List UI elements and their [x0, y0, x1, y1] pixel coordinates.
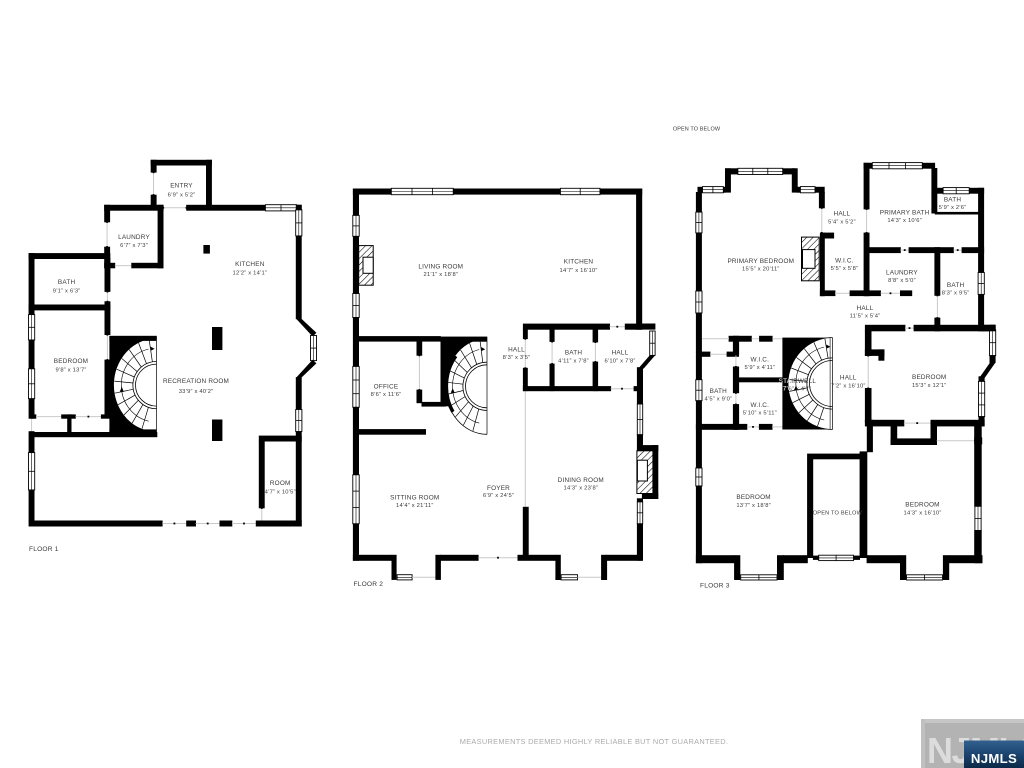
svg-text:BATH: BATH	[947, 282, 965, 289]
svg-text:PRIMARY BATH: PRIMARY BATH	[880, 209, 930, 216]
svg-text:15’3” x 12’1”: 15’3” x 12’1”	[912, 383, 947, 389]
svg-text:BEDROOM: BEDROOM	[736, 494, 770, 501]
svg-text:FLOOR 3: FLOOR 3	[700, 583, 730, 590]
svg-text:DINING ROOM: DINING ROOM	[558, 477, 604, 484]
svg-text:OFFICE: OFFICE	[374, 384, 399, 391]
svg-text:8’3” x 9’5”: 8’3” x 9’5”	[942, 291, 970, 297]
svg-text:LAUNDRY: LAUNDRY	[886, 270, 918, 277]
svg-text:W.I.C.: W.I.C.	[750, 356, 769, 363]
svg-text:W.I.C.: W.I.C.	[750, 402, 769, 409]
svg-text:14’4” x 21’11”: 14’4” x 21’11”	[396, 503, 434, 509]
svg-text:14’3” x 10’6”: 14’3” x 10’6”	[887, 218, 922, 224]
svg-text:HALL: HALL	[840, 375, 857, 382]
svg-text:FLOOR 2: FLOOR 2	[354, 581, 384, 588]
svg-text:BEDROOM: BEDROOM	[54, 358, 88, 365]
svg-text:OPEN TO BELOW: OPEN TO BELOW	[673, 127, 721, 133]
svg-text:OPEN TO BELOW: OPEN TO BELOW	[813, 511, 863, 517]
svg-text:7’2” x 16’10”: 7’2” x 16’10”	[831, 383, 866, 389]
svg-text:5’9” x 2’6”: 5’9” x 2’6”	[939, 205, 967, 211]
svg-text:11’5” x 5’4”: 11’5” x 5’4”	[850, 314, 881, 320]
svg-text:12’2” x 14’1”: 12’2” x 14’1”	[233, 271, 268, 277]
svg-text:6’10” x 7’8”: 6’10” x 7’8”	[604, 358, 635, 364]
svg-text:FLOOR 1: FLOOR 1	[29, 546, 59, 553]
svg-text:MEASUREMENTS DEEMED HIGHLY REL: MEASUREMENTS DEEMED HIGHLY RELIABLE BUT …	[460, 737, 729, 746]
svg-text:4’7” x 10’5”: 4’7” x 10’5”	[265, 489, 296, 495]
svg-text:FOYER: FOYER	[487, 485, 510, 492]
svg-text:BATH: BATH	[944, 196, 962, 203]
svg-text:ROOM: ROOM	[270, 480, 291, 487]
svg-text:LAUNDRY: LAUNDRY	[118, 234, 150, 241]
svg-text:KITCHEN: KITCHEN	[235, 261, 265, 268]
svg-text:ENTRY: ENTRY	[170, 183, 193, 190]
svg-text:W.I.C.: W.I.C.	[835, 258, 854, 265]
svg-text:5’4” x 5’2”: 5’4” x 5’2”	[828, 220, 856, 226]
svg-text:BATH: BATH	[58, 279, 76, 286]
svg-text:BATH: BATH	[565, 350, 583, 357]
svg-text:HALL: HALL	[857, 305, 874, 312]
svg-text:8’8” x 5’0”: 8’8” x 5’0”	[888, 278, 916, 284]
svg-text:PRIMARY BEDROOM: PRIMARY BEDROOM	[727, 258, 794, 265]
svg-text:14’3” x 23’8”: 14’3” x 23’8”	[564, 485, 599, 491]
svg-text:5’5” x 5’8”: 5’5” x 5’8”	[831, 266, 859, 272]
svg-text:15’5” x 20’11”: 15’5” x 20’11”	[742, 267, 780, 273]
svg-text:6’9” x 5’2”: 6’9” x 5’2”	[168, 193, 196, 199]
svg-text:HALL: HALL	[834, 211, 851, 218]
svg-text:4’5” x 9’0”: 4’5” x 9’0”	[704, 397, 732, 403]
svg-text:9’1” x 6’3”: 9’1” x 6’3”	[53, 288, 81, 294]
svg-text:6’9” x 24’5”: 6’9” x 24’5”	[483, 493, 514, 499]
svg-text:SITTING ROOM: SITTING ROOM	[390, 495, 439, 502]
svg-text:8’3” x 3’5”: 8’3” x 3’5”	[503, 355, 531, 361]
svg-text:KITCHEN: KITCHEN	[564, 259, 594, 266]
svg-text:14’7” x 16’10”: 14’7” x 16’10”	[560, 268, 598, 274]
svg-text:5’10” x 5’11”: 5’10” x 5’11”	[743, 411, 777, 417]
svg-text:6’7” x 7’3”: 6’7” x 7’3”	[120, 243, 148, 249]
svg-text:21’1” x 18’8”: 21’1” x 18’8”	[424, 272, 459, 278]
svg-text:13’7” x 18’8”: 13’7” x 18’8”	[736, 503, 771, 509]
svg-text:14’3” x 16’10”: 14’3” x 16’10”	[904, 511, 942, 517]
svg-text:9’8” x 13’7”: 9’8” x 13’7”	[55, 368, 86, 374]
svg-text:NJMLS: NJMLS	[971, 751, 1017, 766]
svg-text:HALL: HALL	[612, 350, 629, 357]
svg-text:5’9” x 4’11”: 5’9” x 4’11”	[744, 365, 775, 371]
svg-text:HALL: HALL	[508, 347, 525, 354]
svg-text:BEDROOM: BEDROOM	[905, 501, 939, 508]
svg-text:BEDROOM: BEDROOM	[912, 374, 946, 381]
svg-text:LIVING ROOM: LIVING ROOM	[418, 264, 463, 271]
svg-text:RECREATION ROOM: RECREATION ROOM	[163, 378, 229, 385]
svg-text:4’11” x 7’8”: 4’11” x 7’8”	[558, 358, 589, 364]
svg-text:8’6” x 11’6”: 8’6” x 11’6”	[371, 392, 402, 398]
svg-text:BATH: BATH	[710, 388, 728, 395]
svg-text:33’9” x 40’2”: 33’9” x 40’2”	[179, 389, 214, 395]
